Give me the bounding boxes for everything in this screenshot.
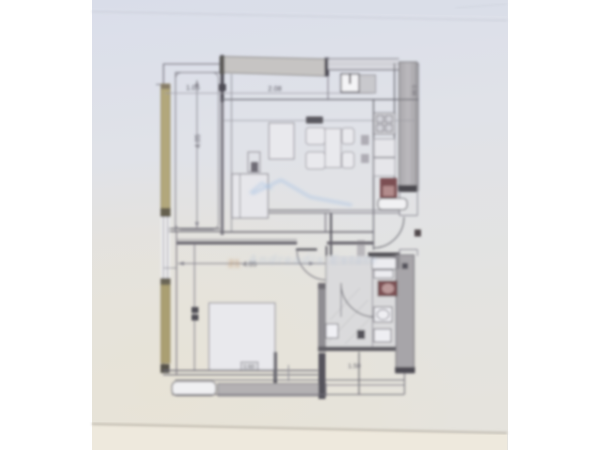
svg-text:Andreadis Estate: Andreadis Estate (247, 252, 378, 267)
svg-text:2.08: 2.08 (268, 86, 282, 93)
svg-text:1.50: 1.50 (348, 363, 361, 370)
svg-text:21: 21 (228, 258, 240, 270)
svg-text:1.05: 1.05 (186, 85, 200, 92)
svg-text:0.98: 0.98 (410, 85, 416, 96)
svg-text:4.05: 4.05 (195, 134, 202, 148)
svg-text:1.60: 1.60 (244, 365, 255, 371)
